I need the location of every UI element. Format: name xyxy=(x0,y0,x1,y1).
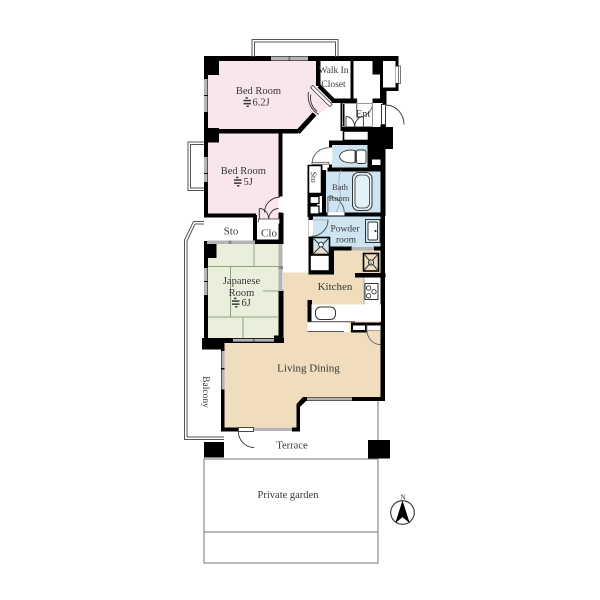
svg-text:Clo: Clo xyxy=(261,228,277,240)
svg-text:R: R xyxy=(369,261,373,267)
svg-text:Balcony: Balcony xyxy=(200,376,210,408)
svg-text:Powder: Powder xyxy=(330,225,360,235)
svg-text:Closet: Closet xyxy=(321,80,346,90)
svg-text:Terrace: Terrace xyxy=(276,441,308,452)
svg-text:Living Dining: Living Dining xyxy=(277,363,340,375)
svg-text:Kitchen: Kitchen xyxy=(318,281,353,293)
svg-text:Sto: Sto xyxy=(224,226,239,238)
svg-text:Japanese: Japanese xyxy=(223,276,261,287)
svg-text:Bed Room: Bed Room xyxy=(236,86,281,97)
svg-text:Walk In: Walk In xyxy=(318,66,348,76)
svg-text:Private garden: Private garden xyxy=(258,490,320,501)
svg-text:Room: Room xyxy=(329,193,350,203)
svg-text:5J: 5J xyxy=(244,177,253,188)
svg-text:N: N xyxy=(400,493,406,502)
svg-text:6.2J: 6.2J xyxy=(253,98,270,109)
svg-text:Bath: Bath xyxy=(332,182,349,192)
svg-text:Ent: Ent xyxy=(356,109,371,120)
svg-text:room: room xyxy=(336,236,357,246)
svg-text:Bed Room: Bed Room xyxy=(221,166,266,177)
svg-text:6J: 6J xyxy=(242,298,251,309)
svg-text:Sto: Sto xyxy=(309,171,319,182)
